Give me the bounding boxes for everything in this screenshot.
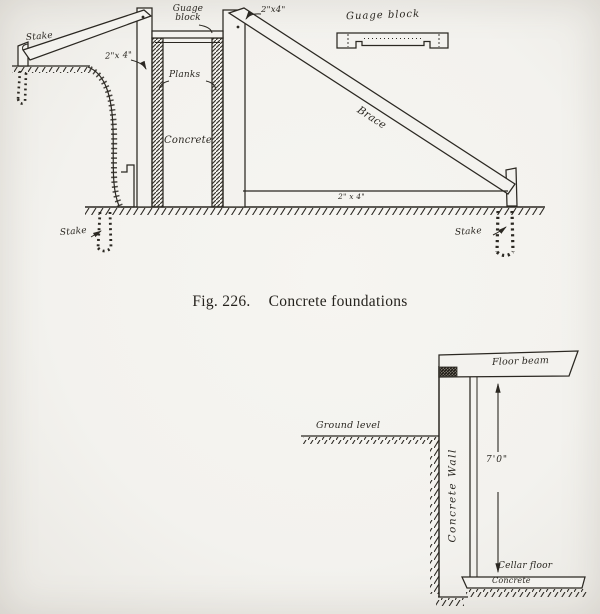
- scanned-book-page: Stake Guage block 2"x 4" 2"x4" Planks Co…: [0, 0, 600, 614]
- gauge-block-in-form: [152, 31, 223, 38]
- label-ground-level: Ground level: [316, 421, 380, 431]
- trench-bottom-ground: [85, 207, 545, 215]
- beam-bearing-block: [440, 367, 457, 376]
- buried-stake-dashed: [18, 71, 26, 103]
- figure-title: Concrete foundations: [269, 293, 408, 310]
- label-2x4-bottom: 2" x 4": [338, 193, 365, 201]
- label-2x4-left: 2"x 4": [105, 51, 133, 61]
- label-height-dimension: 7'0": [486, 456, 508, 465]
- gauge-block-detail: [337, 33, 448, 48]
- ground-level-line: [301, 436, 439, 444]
- excavation-edge: [88, 67, 120, 206]
- label-gauge-block: Guage block: [166, 5, 210, 23]
- label-2x4-right: 2"x4": [261, 6, 285, 15]
- left-upright-2x4: [137, 8, 152, 207]
- label-planks: Planks: [169, 71, 200, 80]
- label-cellar-floor: Cellar floor: [498, 562, 552, 571]
- loose-board: [121, 165, 134, 207]
- figure-caption: Fig. 226.Concrete foundations: [0, 293, 600, 311]
- label-concrete-wall: Concrete Wall: [448, 420, 459, 570]
- label-concrete-form: Concrete: [164, 136, 212, 146]
- buried-stake-dashed: [497, 211, 513, 256]
- label-floor-beam: Floor beam: [492, 356, 549, 368]
- left-form-plank: [152, 38, 163, 207]
- figure-number: Fig. 226.: [192, 293, 250, 310]
- upper-left-ground: [12, 66, 90, 73]
- right-upright-2x4: [223, 10, 245, 207]
- label-stake-bottom-right: Stake: [455, 227, 483, 238]
- right-form-plank: [212, 38, 223, 207]
- foundation-form-diagram: [12, 8, 545, 256]
- label-concrete-slab: Concrete: [492, 577, 531, 585]
